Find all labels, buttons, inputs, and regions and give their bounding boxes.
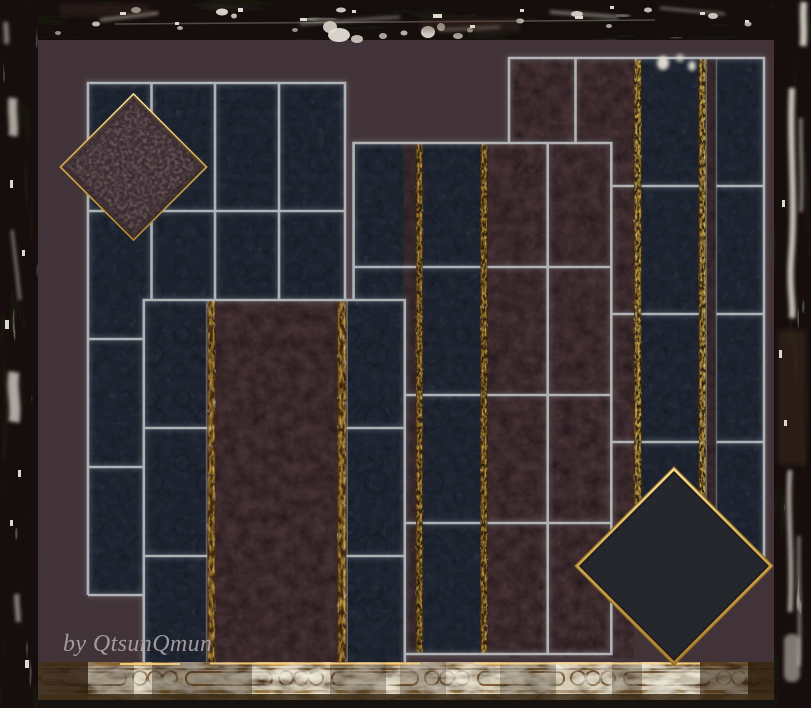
svg-text:by QtsunQmun: by QtsunQmun — [63, 631, 212, 657]
